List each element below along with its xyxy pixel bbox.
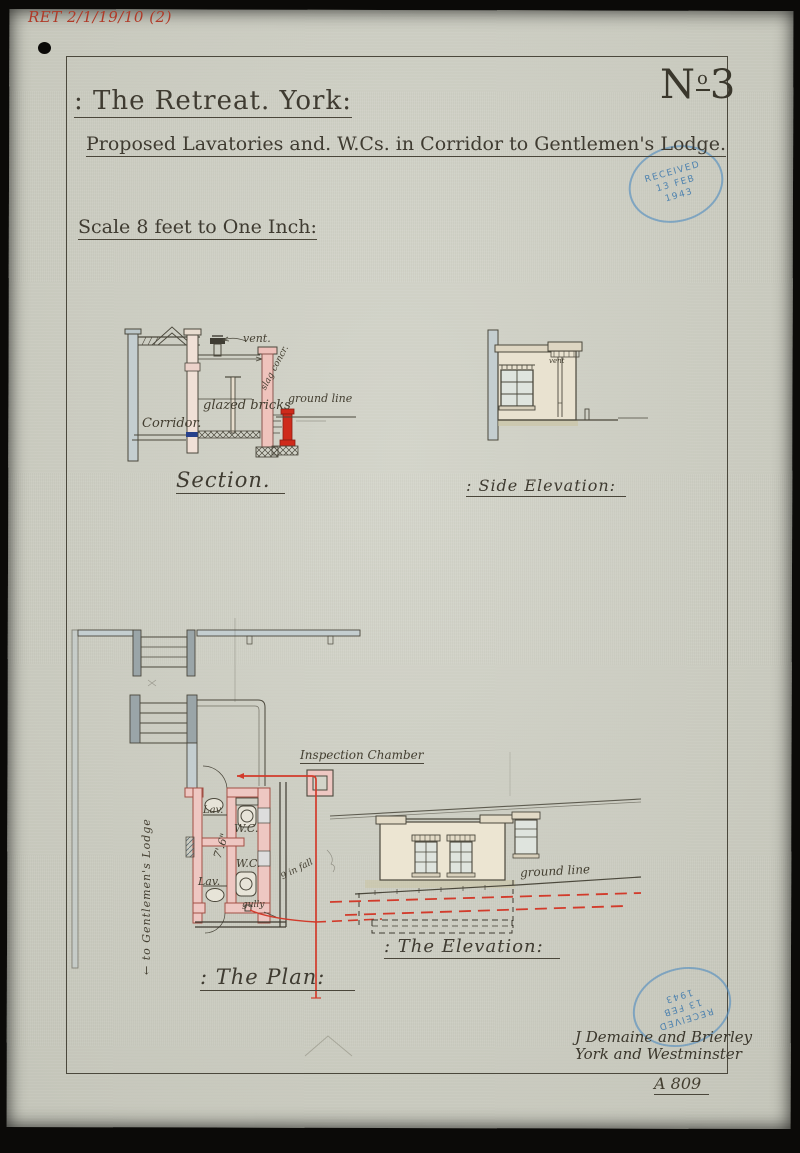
hole-punch-mark	[38, 42, 51, 54]
scale-note: Scale 8 feet to One Inch:	[78, 216, 317, 238]
side-elevation-caption-text: : Side Elevation:	[466, 476, 626, 497]
sheet-number: No3	[660, 62, 736, 108]
plan-inspection-chamber-label: Inspection Chamber	[300, 748, 424, 762]
section-vent-label: vent.	[243, 332, 271, 345]
plan-caption-text: : The Plan:	[200, 965, 355, 991]
plan-to-lodge-label: ← to Gentlemen's Lodge	[140, 818, 153, 975]
page-subtitle-text: Proposed Lavatories and. W.Cs. in Corrid…	[86, 133, 726, 157]
plan-wc-top-label: W.C.	[234, 822, 258, 835]
signature-line-1: J Demaine and Brierley	[575, 1029, 752, 1046]
page-title: : The Retreat. York:	[74, 86, 352, 116]
sheet-number-n: N	[660, 62, 696, 108]
page-subtitle: Proposed Lavatories and. W.Cs. in Corrid…	[86, 133, 726, 155]
scanned-drawing-photo: RET 2/1/19/10 (2) No3 Received 13 FEB 19…	[0, 0, 800, 1153]
drawing-border-frame	[66, 56, 728, 1074]
sheet-number-o: o	[696, 68, 710, 91]
folio-number-text: A 809	[654, 1074, 709, 1095]
plan-inspection-chamber-text: Inspection Chamber	[300, 748, 424, 764]
scale-note-text: Scale 8 feet to One Inch:	[78, 216, 317, 240]
plan-lav-bottom-label: Lav.	[198, 875, 220, 888]
plan-caption: : The Plan:	[200, 965, 355, 989]
section-caption: Section.	[176, 468, 285, 492]
signature-line-2: York and Westminster	[575, 1046, 752, 1063]
folio-number: A 809	[654, 1074, 709, 1093]
section-caption-text: Section.	[176, 468, 285, 494]
plan-lav-top-label: Lav.	[203, 805, 223, 816]
section-corridor-label: Corridor.	[142, 416, 201, 431]
side-elevation-caption: : Side Elevation:	[466, 476, 626, 495]
elevation-caption: : The Elevation:	[384, 936, 560, 957]
page-title-text: : The Retreat. York:	[74, 86, 352, 118]
section-glazed-bricks-label: glazed bricks	[203, 398, 291, 413]
section-ground-line-label: ground line	[288, 392, 352, 405]
plan-gully-label: gully	[242, 900, 264, 910]
architect-signature: J Demaine and Brierley York and Westmins…	[575, 1029, 752, 1064]
archive-reference: RET 2/1/19/10 (2)	[28, 8, 172, 26]
plan-wc-bottom-label: W.C.	[236, 857, 260, 870]
sheet-number-digit: 3	[710, 62, 736, 108]
side-elevation-vent-label: vent	[549, 357, 564, 365]
elevation-caption-text: : The Elevation:	[384, 936, 560, 959]
